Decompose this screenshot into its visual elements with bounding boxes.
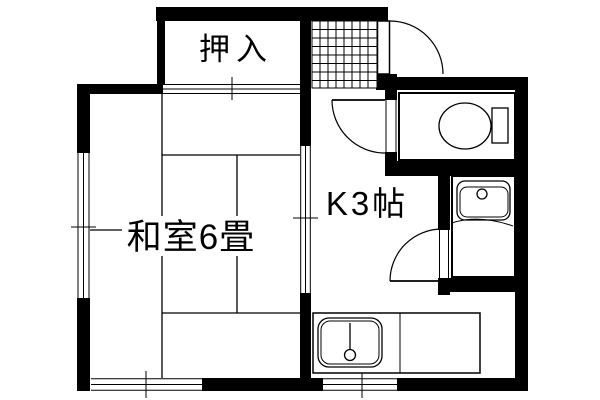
wall-toilet-left-top xyxy=(385,90,397,100)
wall-closet-left xyxy=(157,21,165,84)
floor-plan: 押入 和室6畳 K3帖 xyxy=(0,0,600,400)
wall-room-kitchen-top xyxy=(300,21,311,146)
door-leaf xyxy=(378,21,390,74)
wall-toilet-bottom xyxy=(385,161,515,176)
washbasin-icon xyxy=(452,181,513,226)
floor-plan-drawing: 押入 和室6畳 K3帖 xyxy=(0,0,600,400)
wall-left-upper xyxy=(77,84,90,153)
wall-right xyxy=(515,77,528,391)
wall-washroom-left-top xyxy=(438,176,450,230)
kitchen-sink-icon xyxy=(313,313,480,373)
tile-grid-icon xyxy=(312,21,377,88)
wall-top xyxy=(156,7,388,21)
faucet xyxy=(345,350,356,361)
wall-left-lower xyxy=(77,298,90,391)
wall-washroom-bottom xyxy=(438,278,515,292)
wall-top-right xyxy=(388,77,528,90)
wall-room-kitchen-bottom xyxy=(300,293,311,391)
japanese-room-label: 和室6畳 xyxy=(127,218,255,257)
wall-bottom-right xyxy=(397,378,528,391)
toilet-icon xyxy=(439,103,508,149)
closet-label: 押入 xyxy=(199,32,273,67)
kitchen-label: K3帖 xyxy=(326,185,408,222)
